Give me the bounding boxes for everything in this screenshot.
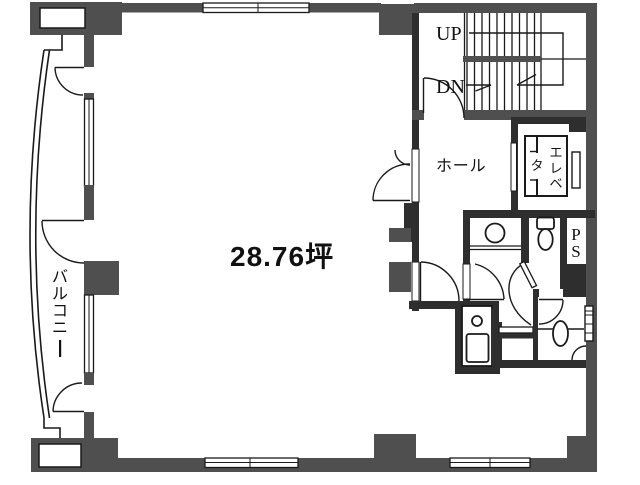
svg-text:ニ: ニ [52, 320, 68, 337]
svg-text:タ: タ [530, 158, 543, 173]
svg-text:28.76坪: 28.76坪 [230, 241, 334, 272]
svg-text:レ: レ [549, 161, 562, 176]
svg-text:ル: ル [52, 286, 68, 303]
svg-text:UP: UP [436, 23, 462, 45]
svg-text:ベ: ベ [549, 176, 562, 191]
svg-text:バ: バ [52, 269, 68, 286]
svg-text:ホール: ホール [436, 158, 486, 175]
svg-text:コ: コ [52, 303, 68, 320]
svg-text:DN: DN [436, 76, 465, 98]
svg-text:S: S [571, 242, 580, 261]
svg-text:エ: エ [549, 145, 562, 160]
